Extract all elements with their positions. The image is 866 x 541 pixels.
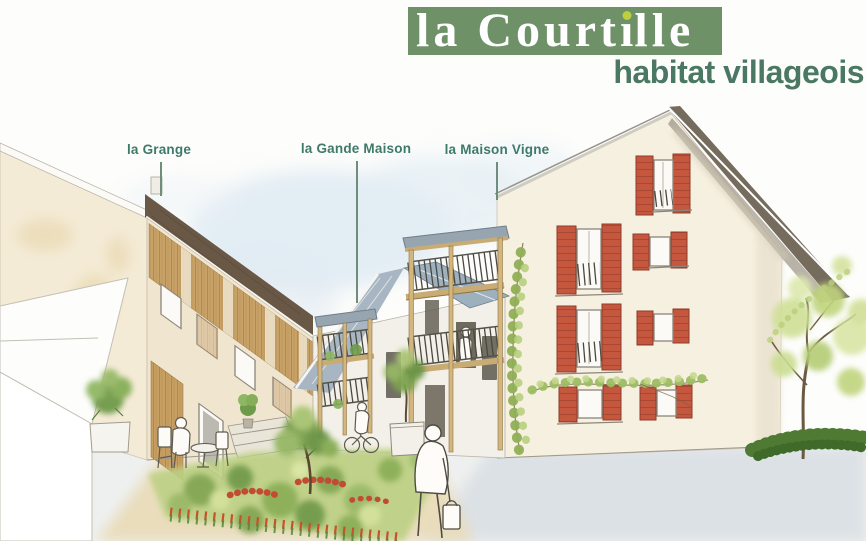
poster: la Courtılle habitat villageois la Grang…: [0, 0, 866, 541]
leader-line-la-gande-maison: [356, 161, 358, 303]
chair: [158, 427, 171, 447]
chair: [216, 432, 228, 449]
paved-courtyard: [425, 446, 866, 541]
window-row2-right: [633, 232, 689, 270]
title-i-dot: [623, 11, 632, 20]
table: [191, 444, 219, 453]
label-la-maison-vigne: la Maison Vigne: [417, 142, 577, 157]
label-la-grange: la Grange: [79, 142, 239, 157]
window-row3-right: [637, 309, 689, 345]
window-row4-left: [557, 385, 623, 424]
shopping-bag: [443, 505, 460, 529]
page-title: la Courtılle: [408, 7, 722, 55]
leader-line-la-maison-vigne: [496, 162, 498, 200]
page-subtitle: habitat villageois: [613, 54, 864, 90]
title-banner: la Courtılle: [408, 7, 722, 55]
window-french-row2-left: [555, 224, 623, 296]
window-gable: [636, 154, 692, 215]
leader-line-la-grange: [160, 162, 162, 196]
label-la-gande-maison: la Gande Maison: [276, 141, 436, 156]
window-french-row3-left: [555, 304, 623, 374]
